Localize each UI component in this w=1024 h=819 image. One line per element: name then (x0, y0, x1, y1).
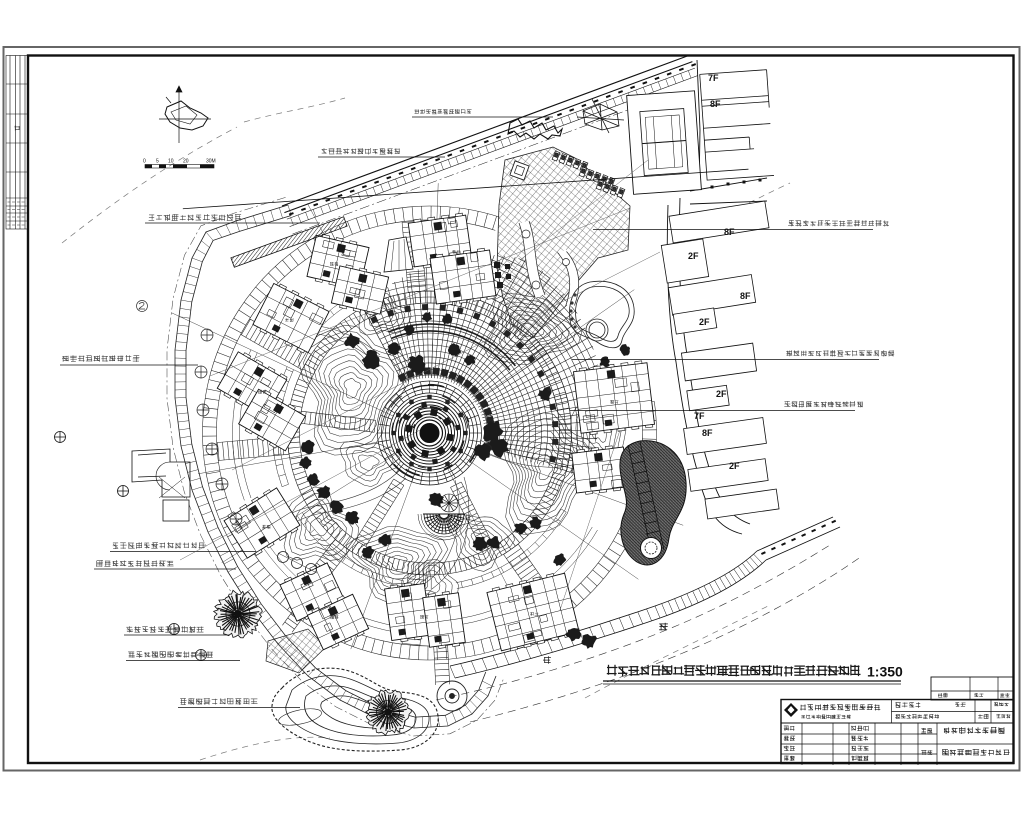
svg-text:0: 0 (143, 159, 146, 165)
svg-text:8F: 8F (740, 291, 751, 301)
svg-text:2F: 2F (699, 317, 710, 327)
svg-text:30M: 30M (206, 159, 216, 165)
svg-text:7F: 7F (694, 411, 705, 421)
svg-text:7F: 7F (708, 73, 719, 83)
svg-text:8F: 8F (710, 99, 721, 109)
svg-text:2F: 2F (716, 389, 727, 399)
svg-text:2F: 2F (688, 251, 699, 261)
svg-text:2F: 2F (729, 461, 740, 471)
svg-text:5: 5 (156, 159, 159, 165)
svg-text:8F: 8F (702, 428, 713, 438)
svg-text:20: 20 (183, 159, 189, 165)
svg-text:8F: 8F (724, 227, 735, 237)
svg-text:1:350: 1:350 (867, 664, 903, 680)
svg-text:10: 10 (168, 159, 174, 165)
